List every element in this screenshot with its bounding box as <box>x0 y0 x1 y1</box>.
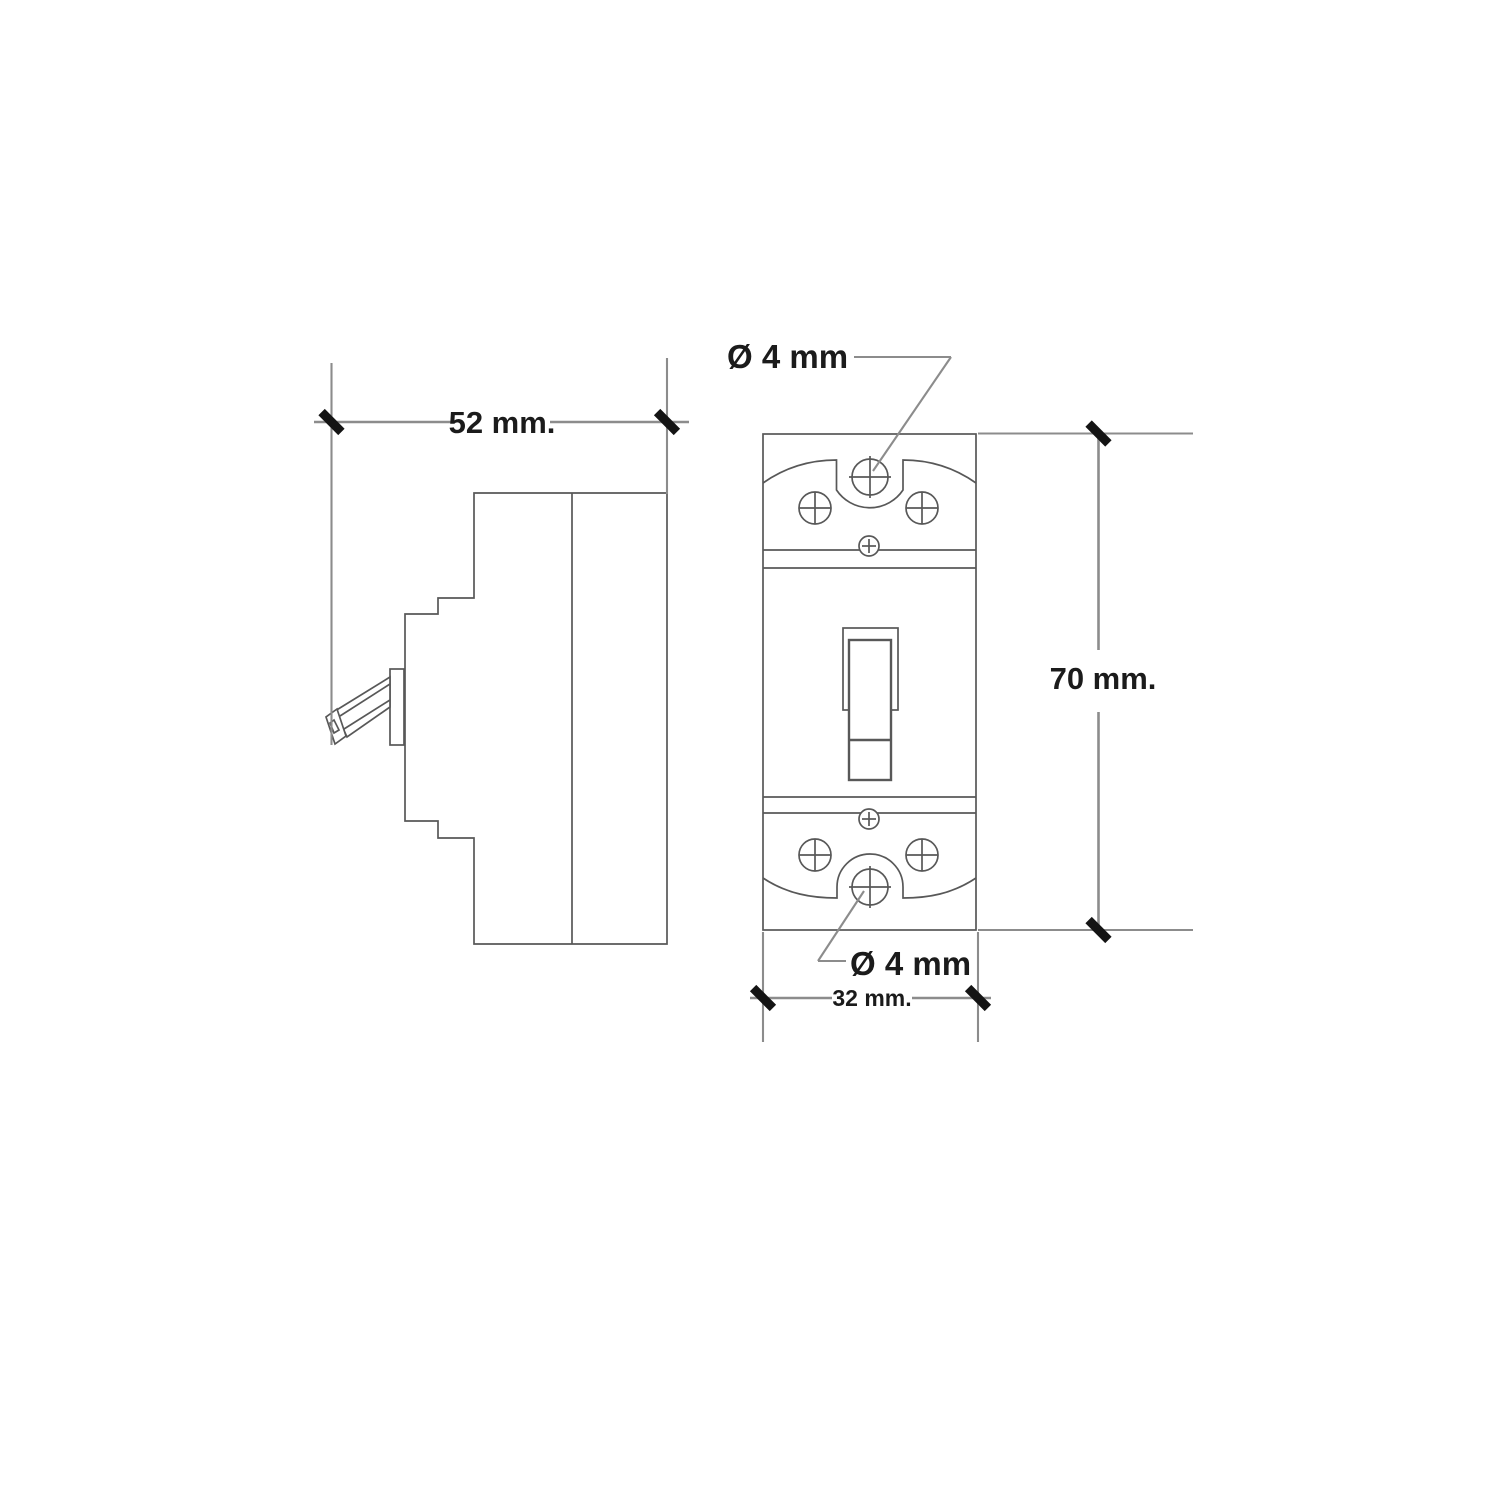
dimension-label-70mm: 70 mm. <box>1050 661 1157 696</box>
dimension-label-52mm: 52 mm. <box>449 405 556 440</box>
leader-line-diagonal <box>873 357 951 471</box>
toggle-handle <box>849 640 891 780</box>
toggle-switch <box>843 628 898 780</box>
side-view <box>326 493 667 944</box>
dimension-label-32mm: 32 mm. <box>832 985 911 1011</box>
hole-diameter-label-top: Ø 4 mm <box>727 338 848 375</box>
side-view-outline <box>405 493 667 944</box>
drawing-canvas: 52 mm. 70 mm. 32 mm. Ø 4 mm Ø 4 mm <box>0 0 1500 1500</box>
terminal-screw-top-right <box>906 492 938 524</box>
bottom-mounting-hole <box>849 866 891 908</box>
dimension-70mm: 70 mm. <box>978 420 1193 943</box>
lever-mount-plate <box>390 669 404 745</box>
terminal-screw-bottom-left <box>799 839 831 871</box>
terminal-screw-bottom-right <box>906 839 938 871</box>
cover-screw-bottom <box>859 809 879 829</box>
breaker-dimension-drawing: 52 mm. 70 mm. 32 mm. Ø 4 mm Ø 4 mm <box>0 0 1500 1500</box>
cover-screw-top <box>859 536 879 556</box>
top-mounting-hole <box>849 456 891 498</box>
dimension-52mm: 52 mm. <box>314 358 689 745</box>
front-view <box>763 434 976 930</box>
hole-diameter-label-bottom: Ø 4 mm <box>850 945 971 982</box>
toggle-lever <box>326 677 390 744</box>
top-hole-callout: Ø 4 mm <box>727 338 951 471</box>
terminal-screw-top-left <box>799 492 831 524</box>
bottom-hole-callout: Ø 4 mm <box>818 891 971 982</box>
